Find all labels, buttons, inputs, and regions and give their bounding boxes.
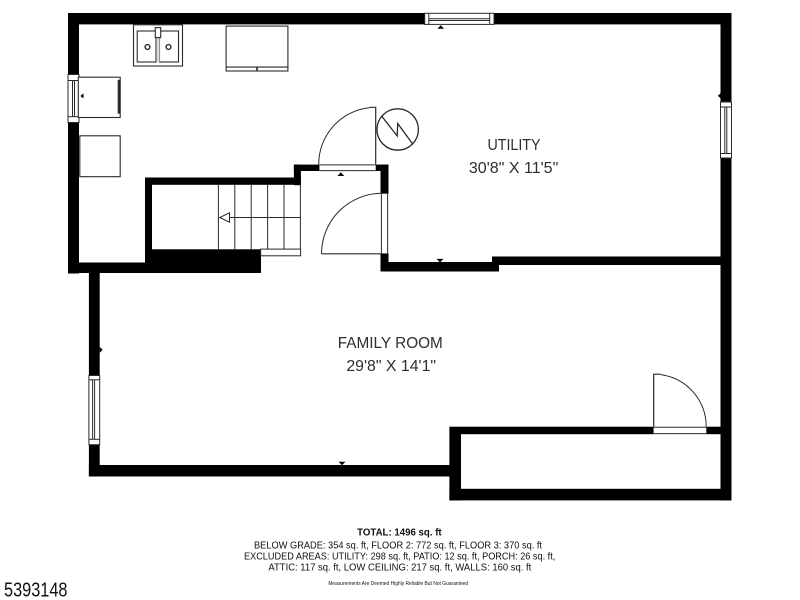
svg-text:BELOW GRADE: 354 sq. ft, FLOOR: BELOW GRADE: 354 sq. ft, FLOOR 2: 772 sq… [254,539,542,551]
svg-text:UTILITY: UTILITY [488,137,541,154]
svg-text:29'8" X 14'1": 29'8" X 14'1" [346,358,436,375]
svg-text:ATTIC: 117 sq. ft, LOW CEILING: ATTIC: 117 sq. ft, LOW CEILING: 217 sq. … [268,562,531,574]
svg-text:5393148: 5393148 [4,580,68,600]
svg-text:TOTAL: 1496 sq. ft: TOTAL: 1496 sq. ft [357,527,442,539]
svg-text:FAMILY ROOM: FAMILY ROOM [338,335,443,352]
svg-text:30'8" X 11'5": 30'8" X 11'5" [469,160,558,177]
svg-text:Measurements Are Deemed Highly: Measurements Are Deemed Highly Reliable … [328,581,468,587]
